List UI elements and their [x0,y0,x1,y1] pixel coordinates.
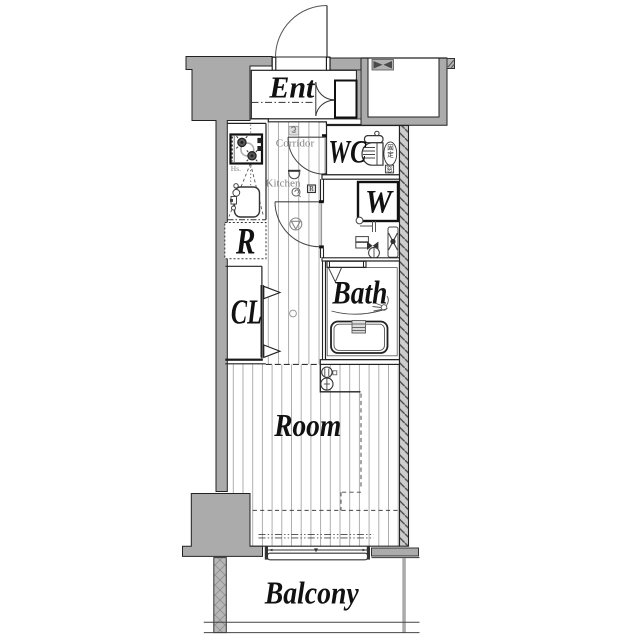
svg-text:Corridor: Corridor [276,138,315,150]
svg-text:Hs.: Hs. [231,164,241,173]
svg-text:Balcony: Balcony [264,576,360,611]
svg-text:Room: Room [273,407,341,443]
svg-text:CL: CL [231,292,262,331]
svg-text:定: 定 [387,150,394,159]
svg-text:R: R [235,222,255,263]
svg-text:Ent: Ent [268,70,315,105]
svg-text:Kitchen: Kitchen [266,177,301,189]
svg-text:窓: 窓 [386,165,393,174]
svg-text:WC: WC [328,134,367,170]
svg-text:固: 固 [387,144,394,152]
svg-text:Bath: Bath [332,276,388,312]
svg-text:R: R [309,185,314,193]
svg-text:W: W [365,185,394,221]
